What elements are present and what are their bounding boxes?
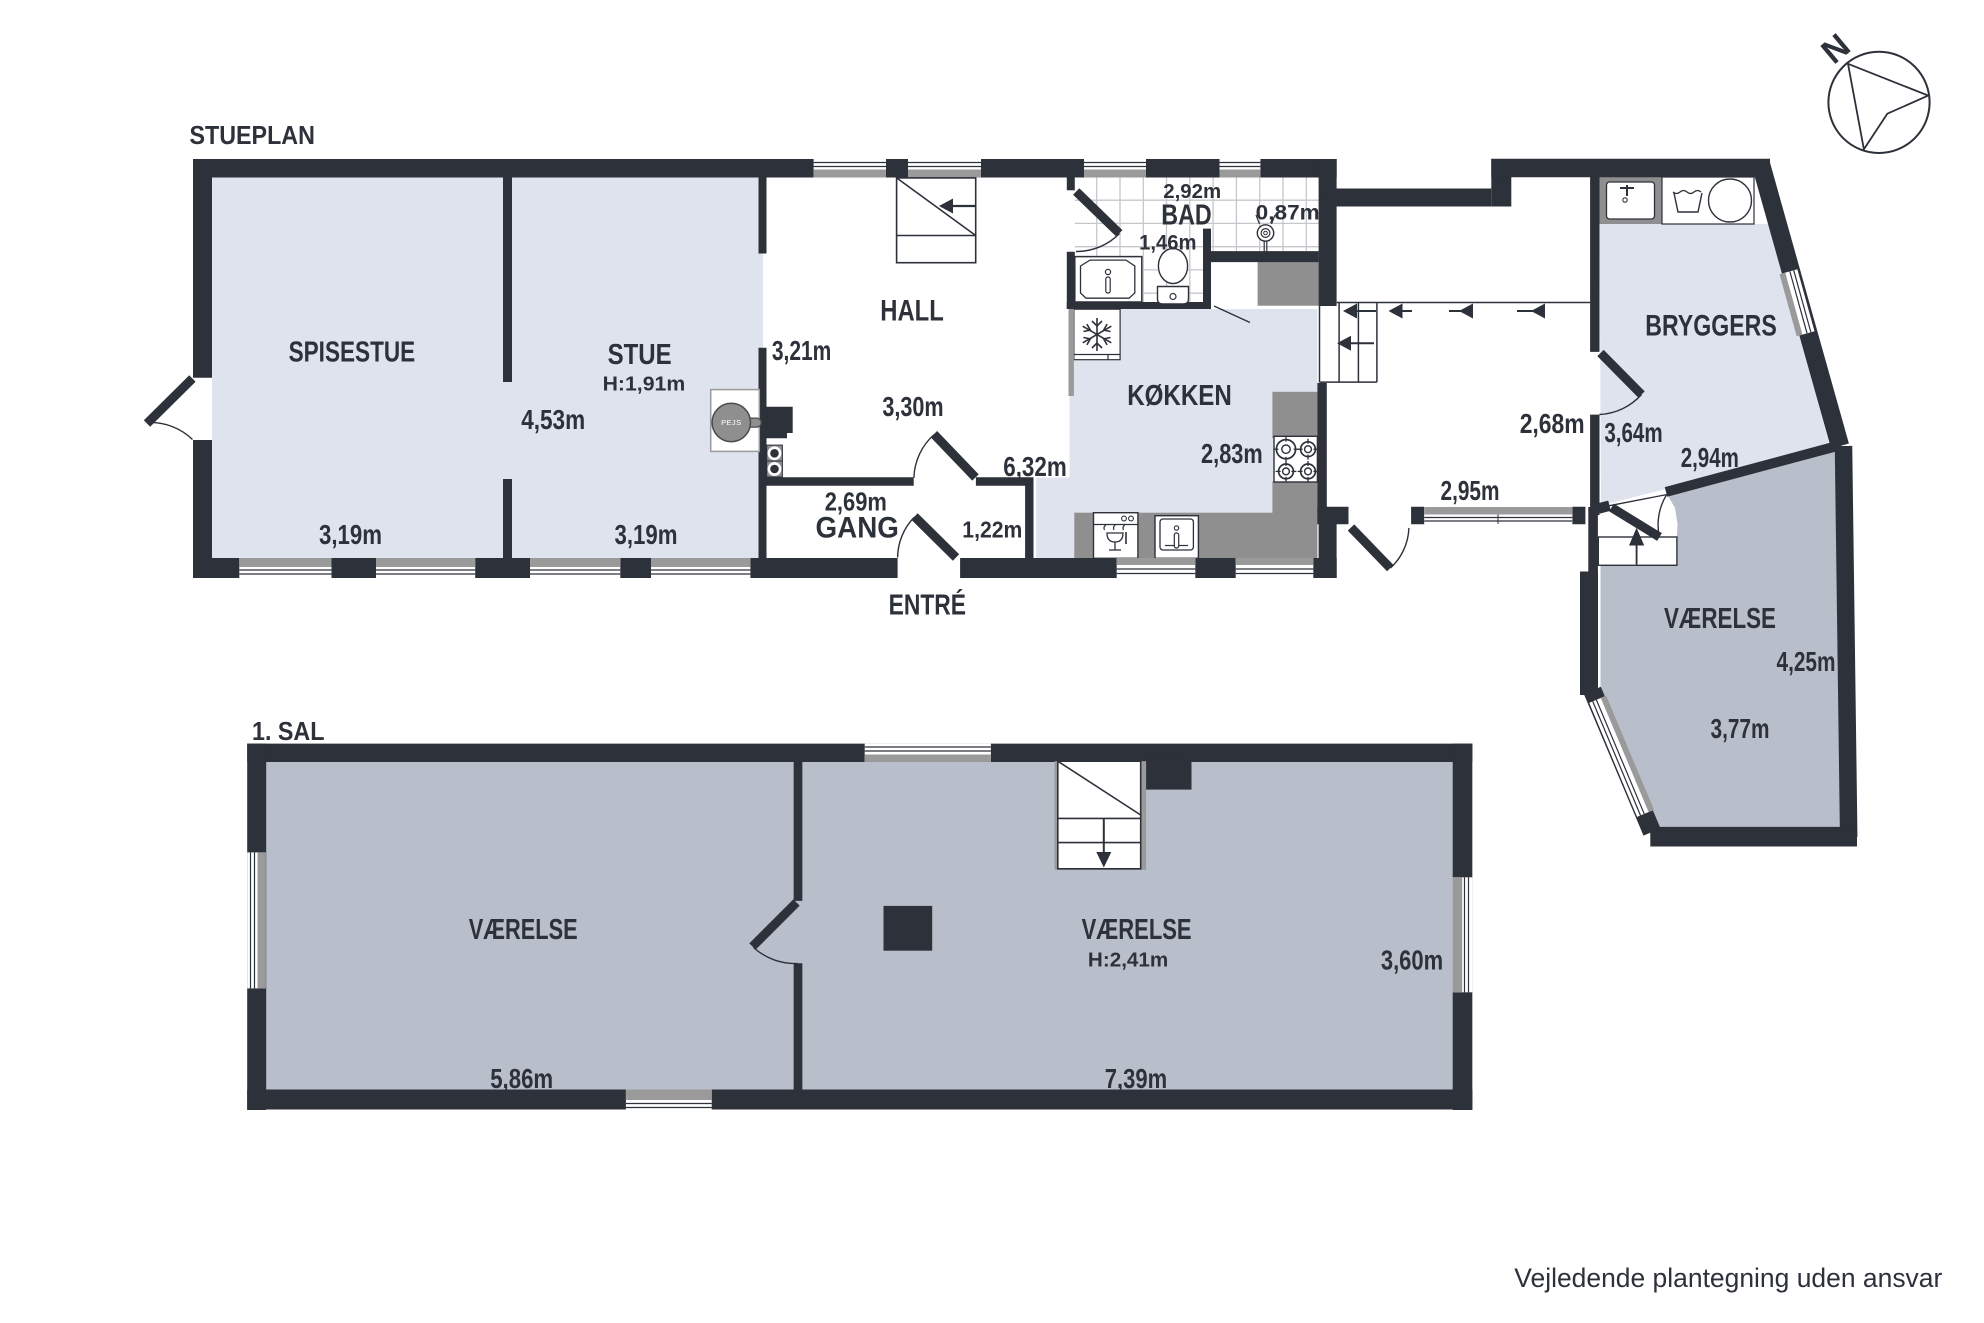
svg-text:2,94m: 2,94m xyxy=(1681,442,1739,473)
svg-text:3,60m: 3,60m xyxy=(1381,945,1443,976)
svg-text:6,32m: 6,32m xyxy=(1003,451,1067,482)
svg-text:7,39m: 7,39m xyxy=(1105,1063,1167,1094)
svg-text:2,95m: 2,95m xyxy=(1441,475,1500,506)
svg-text:3,30m: 3,30m xyxy=(882,391,943,422)
svg-text:2,83m: 2,83m xyxy=(1201,438,1263,469)
svg-text:3,77m: 3,77m xyxy=(1711,713,1770,744)
svg-text:BAD: BAD xyxy=(1161,199,1211,231)
svg-text:1. SAL: 1. SAL xyxy=(252,716,325,746)
svg-text:VÆRELSE: VÆRELSE xyxy=(469,914,578,946)
svg-text:3,21m: 3,21m xyxy=(772,335,832,366)
svg-text:0,87m: 0,87m xyxy=(1256,201,1320,224)
svg-text:STUEPLAN: STUEPLAN xyxy=(190,120,315,150)
svg-text:4,25m: 4,25m xyxy=(1777,646,1836,677)
svg-text:1,22m: 1,22m xyxy=(962,516,1022,542)
svg-text:H:1,91m: H:1,91m xyxy=(603,373,686,395)
svg-text:2,92m: 2,92m xyxy=(1163,181,1221,203)
svg-text:ENTRÉ: ENTRÉ xyxy=(889,588,966,622)
svg-text:Vejledende plantegning uden an: Vejledende plantegning uden ansvar xyxy=(1514,1263,1942,1293)
svg-text:KØKKEN: KØKKEN xyxy=(1127,380,1232,412)
svg-text:1,46m: 1,46m xyxy=(1139,232,1196,255)
svg-text:H:2,41m: H:2,41m xyxy=(1088,950,1168,972)
svg-text:3,19m: 3,19m xyxy=(319,519,382,550)
svg-text:VÆRELSE: VÆRELSE xyxy=(1082,914,1192,946)
svg-text:VÆRELSE: VÆRELSE xyxy=(1664,603,1776,635)
svg-text:STUE: STUE xyxy=(608,339,672,371)
svg-text:BRYGGERS: BRYGGERS xyxy=(1645,309,1777,342)
svg-text:HALL: HALL xyxy=(880,295,944,328)
svg-text:2,68m: 2,68m xyxy=(1520,408,1585,439)
svg-text:3,64m: 3,64m xyxy=(1604,417,1662,448)
svg-text:GANG: GANG xyxy=(816,511,899,544)
svg-text:PEJS: PEJS xyxy=(721,418,741,427)
svg-text:3,19m: 3,19m xyxy=(615,519,678,550)
svg-text:SPISESTUE: SPISESTUE xyxy=(289,337,416,369)
svg-text:5,86m: 5,86m xyxy=(490,1063,553,1094)
svg-text:4,53m: 4,53m xyxy=(521,404,585,435)
